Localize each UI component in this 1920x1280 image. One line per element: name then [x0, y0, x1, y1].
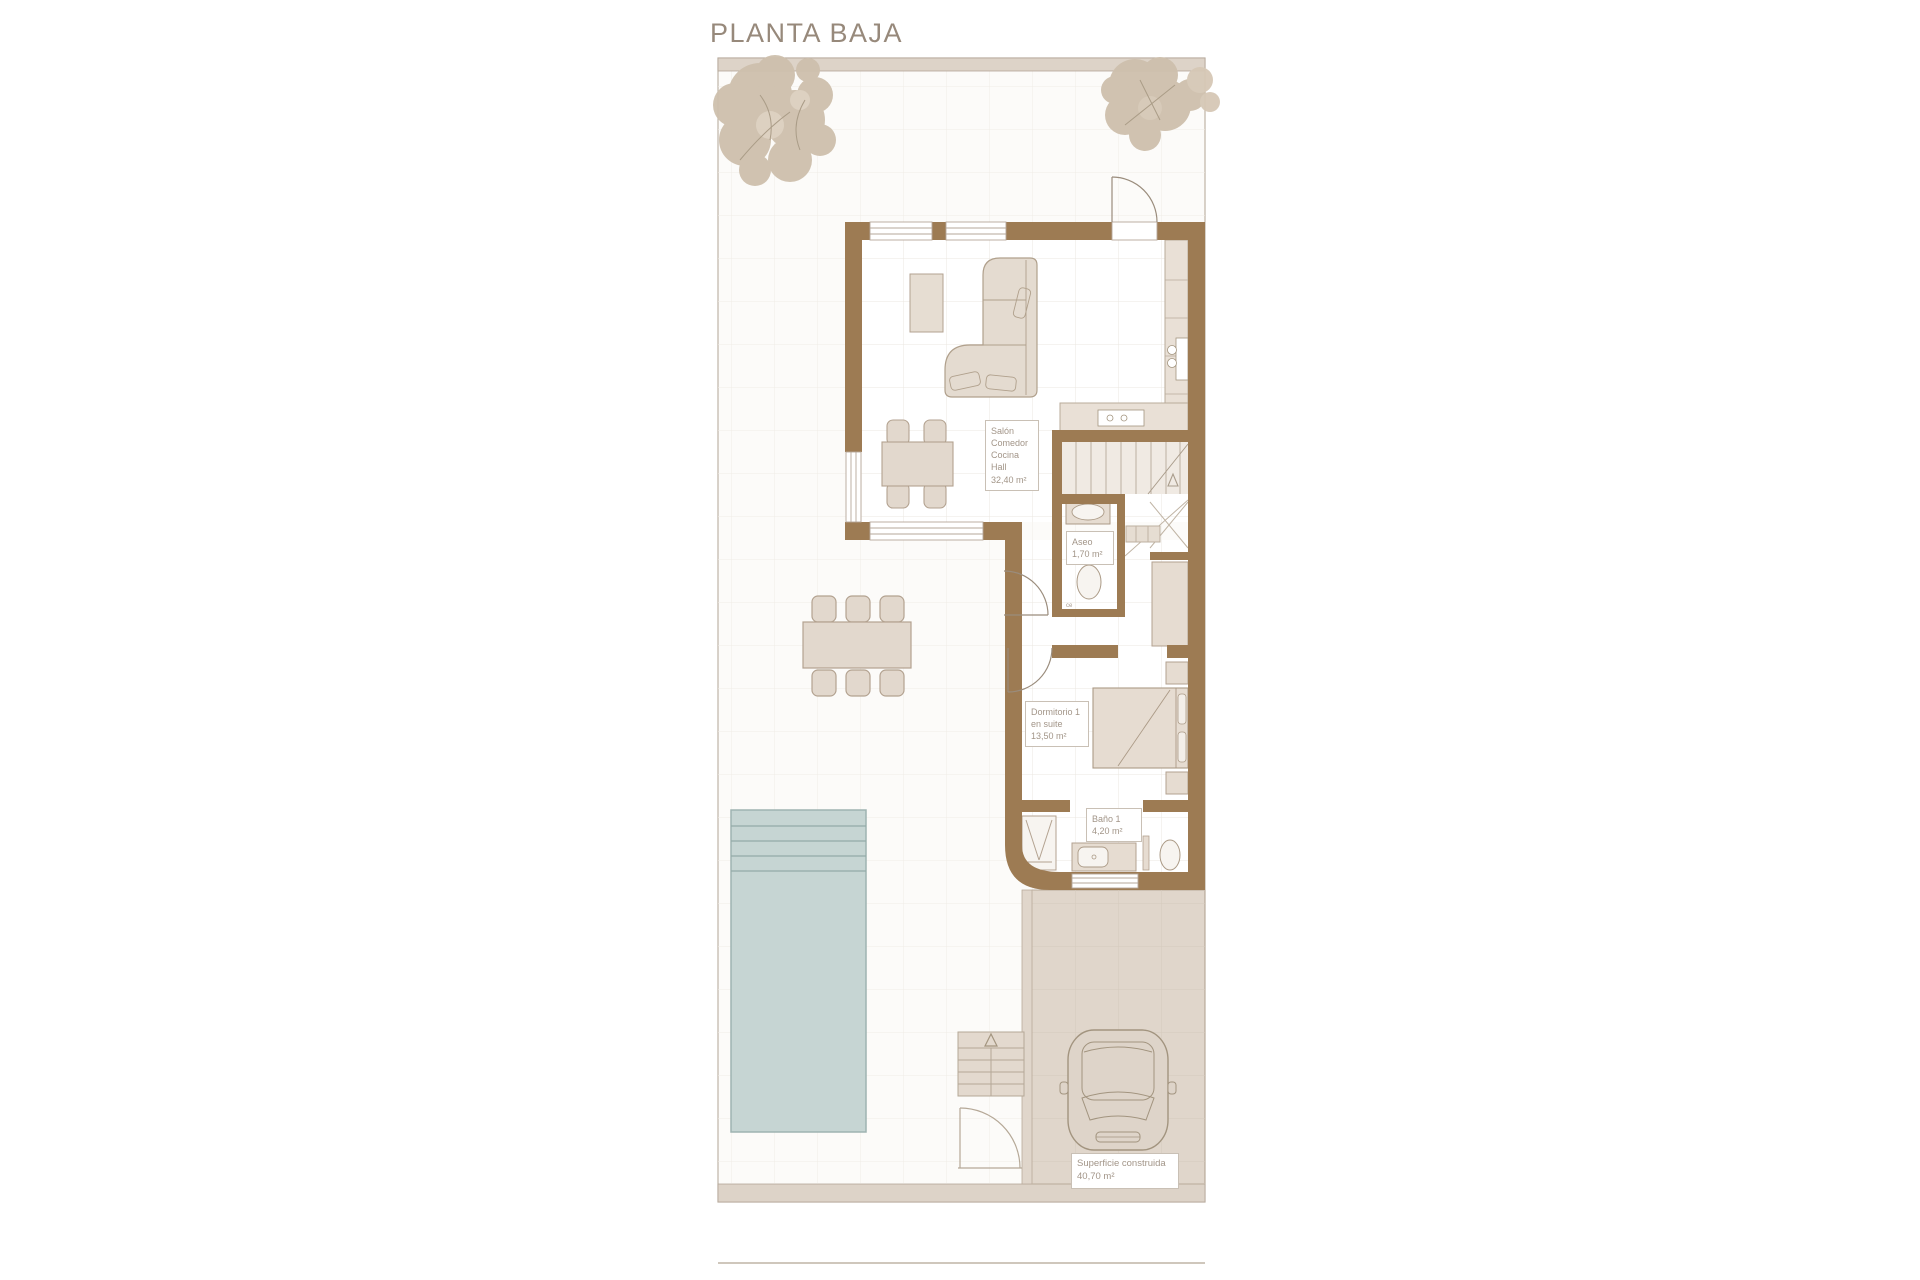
- floor-plan-page: PLANTA BAJA: [0, 0, 1920, 1280]
- footer-separator-line: [718, 1262, 1205, 1264]
- kitchen-counter: [1165, 240, 1188, 418]
- label-line: Baño 1: [1092, 813, 1136, 825]
- entrance-threshold: [1112, 222, 1157, 240]
- label-line: Superficie construida: [1077, 1158, 1173, 1171]
- built-area-label: Superficie construida 40,70 m²: [1071, 1153, 1179, 1189]
- kitchen-sink-bowl: [1168, 359, 1177, 368]
- window-bathroom-south: [1072, 874, 1138, 888]
- double-bed: [1093, 688, 1188, 768]
- floor-plan-drawing: ce: [0, 0, 1920, 1280]
- nightstand: [1166, 662, 1188, 684]
- nightstand: [1166, 772, 1188, 794]
- outdoor-table: [803, 622, 911, 668]
- bathroom-toilet: [1160, 840, 1180, 870]
- label-line: Cocina: [991, 449, 1033, 461]
- room-label-aseo: Aseo 1,70 m²: [1066, 531, 1114, 565]
- label-line: en suite: [1031, 718, 1083, 730]
- room-label-living: Salón Comedor Cocina Hall 32,40 m²: [985, 420, 1039, 491]
- window-living-south: [870, 522, 983, 540]
- label-line: Dormitorio 1: [1031, 706, 1083, 718]
- label-area: 4,20 m²: [1092, 825, 1136, 837]
- label-area: 32,40 m²: [991, 474, 1033, 486]
- window-north-1: [870, 222, 932, 240]
- exterior-stairs: [958, 1032, 1024, 1096]
- kitchen-sink-bowl: [1168, 346, 1177, 355]
- swimming-pool: [731, 810, 866, 1132]
- bathroom-vanity: [1072, 843, 1136, 871]
- sideboard: [910, 274, 943, 332]
- label-line: Hall: [991, 461, 1033, 473]
- pillow: [1178, 694, 1186, 724]
- label-line: Salón: [991, 425, 1033, 437]
- label-area: 13,50 m²: [1031, 730, 1083, 742]
- wardrobe: [1152, 562, 1188, 646]
- outdoor-dining-set: [803, 596, 911, 696]
- label-line: Aseo: [1072, 536, 1108, 548]
- aseo-toilet: [1077, 565, 1101, 599]
- indoor-table: [882, 442, 953, 486]
- room-label-bano: Baño 1 4,20 m²: [1086, 808, 1142, 842]
- door-code-mark: ce: [1066, 603, 1073, 609]
- window-north-2: [946, 222, 1006, 240]
- label-area: 40,70 m²: [1077, 1171, 1173, 1184]
- pillow: [1178, 732, 1186, 762]
- room-label-dormitorio: Dormitorio 1 en suite 13,50 m²: [1025, 701, 1089, 747]
- kitchen-island: [1060, 403, 1188, 433]
- label-area: 1,70 m²: [1072, 548, 1108, 560]
- bath-partition: [1143, 836, 1149, 870]
- window-west: [846, 452, 861, 522]
- kitchen-appliance: [1176, 338, 1188, 380]
- staircase: [1060, 442, 1188, 494]
- car-top-view-icon: [1060, 1030, 1176, 1150]
- label-line: Comedor: [991, 437, 1033, 449]
